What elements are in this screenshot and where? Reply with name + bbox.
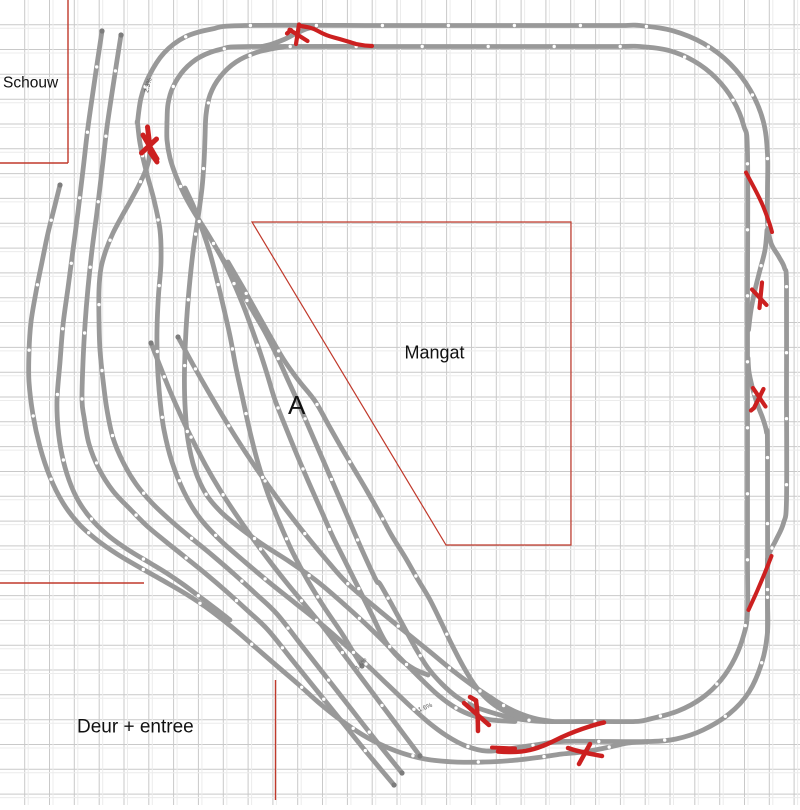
svg-text:A: A (288, 390, 306, 420)
svg-text:Schouw: Schouw (3, 75, 59, 92)
svg-text:Deur + entree: Deur + entree (77, 717, 194, 738)
svg-text:Mangat: Mangat (405, 343, 465, 363)
